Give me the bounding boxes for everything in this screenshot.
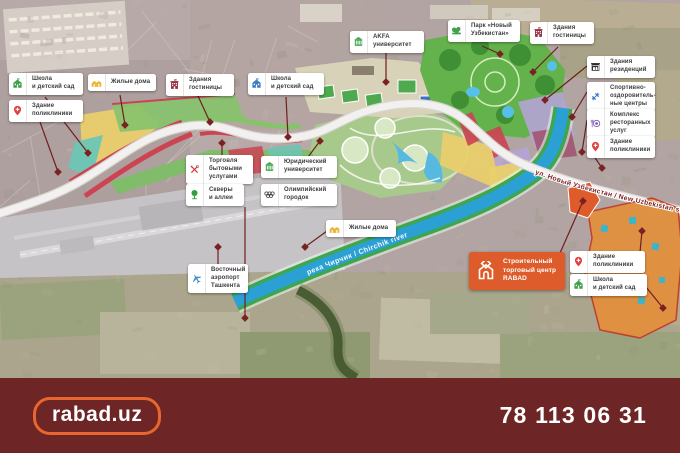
label-text: ВосточныйаэропортТашкента xyxy=(206,264,249,293)
label-line: городок xyxy=(284,195,326,203)
label-line: Торговля xyxy=(209,158,242,166)
label-text: Олимпийскийгородок xyxy=(279,184,330,206)
tools-icon xyxy=(186,155,204,184)
label-residential-1: Жилые дома xyxy=(88,74,156,91)
label-text: AKFAуниверситет xyxy=(368,31,416,53)
label-line: поликлиники xyxy=(32,111,72,119)
label-line: Школа xyxy=(32,76,75,84)
label-text: Скверыи аллеи xyxy=(204,184,237,206)
label-text: Комплексресторанныхуслуг xyxy=(605,109,655,138)
label-line: Школа xyxy=(593,277,636,285)
label-line: услугами xyxy=(209,174,242,182)
label-school-kindergarten-2: Школаи детский сад xyxy=(248,73,324,95)
label-line: Здания xyxy=(189,77,222,85)
label-line: и детский сад xyxy=(271,84,314,92)
label-line: Жилые дома xyxy=(111,79,150,87)
masterplan-map: ул. Новый Узбекистан / New Uzbekistan st… xyxy=(0,0,680,378)
label-line: оздоровитель- xyxy=(610,93,656,101)
label-line: Здание xyxy=(32,103,72,111)
university-icon xyxy=(261,156,279,178)
label-line: Жилые дома xyxy=(349,225,388,233)
label-line: Здания xyxy=(553,25,586,33)
label-line: и детский сад xyxy=(593,285,636,293)
label-line: ресторанных xyxy=(610,120,651,128)
rabad-center-card: Строительный торговый центр RABAD xyxy=(469,252,565,290)
label-hotel-1: Зданиягостиницы xyxy=(166,74,234,96)
university-icon xyxy=(350,31,368,53)
label-polyclinic-1: Зданиеполиклиники xyxy=(9,100,83,122)
rabad-logo-icon xyxy=(476,261,496,281)
satellite-map: ул. Новый Узбекистан / New Uzbekistan st… xyxy=(0,0,680,378)
label-text: Спортивно-оздоровитель-ные центры xyxy=(605,82,660,111)
rabad-site-logo: rabad.uz xyxy=(33,397,161,435)
label-text: Школаи детский сад xyxy=(588,274,640,296)
label-text: Жилые дома xyxy=(344,220,392,237)
park-icon xyxy=(448,20,466,42)
label-line: Здания xyxy=(610,59,647,67)
label-restaurant-complex: Комплексресторанныхуслуг xyxy=(587,109,655,138)
label-line: резиденций xyxy=(610,67,647,75)
label-line: и аллеи xyxy=(209,195,233,203)
label-text: Зданиеполиклиники xyxy=(588,251,637,273)
label-line: гостиницы xyxy=(553,33,586,41)
houses-icon xyxy=(326,220,344,237)
label-school-kindergarten-1: Школаи детский сад xyxy=(9,73,83,95)
label-text: Школаи детский сад xyxy=(27,73,79,95)
label-polyclinic-2: Зданиеполиклиники xyxy=(587,136,655,158)
airplane-icon xyxy=(188,264,206,293)
label-text: Зданиягостиницы xyxy=(184,74,226,96)
hotel-icon xyxy=(530,22,548,44)
label-line: университет xyxy=(284,167,327,175)
label-line: Юридический xyxy=(284,159,327,167)
label-text: Школаи детский сад xyxy=(266,73,318,95)
label-line: Парк «Новый xyxy=(471,23,512,31)
label-line: и детский сад xyxy=(32,84,75,92)
houses-icon xyxy=(88,74,106,91)
label-line: Скверы xyxy=(209,187,233,195)
phone-number: 78 113 06 31 xyxy=(500,402,647,429)
label-line: Школа xyxy=(271,76,314,84)
rabad-center-text: Строительный торговый центр RABAD xyxy=(503,258,556,284)
school-icon xyxy=(9,73,27,95)
label-polyclinic-3: Зданиеполиклиники xyxy=(570,251,645,273)
label-olympic-town: Олимпийскийгородок xyxy=(261,184,337,206)
label-line: Восточный xyxy=(211,267,245,275)
label-line: аэропорт xyxy=(211,275,245,283)
pin-icon xyxy=(570,251,588,273)
label-line: гостиницы xyxy=(189,85,222,93)
hotel-icon xyxy=(166,74,184,96)
label-text: Зданиярезиденций xyxy=(605,56,651,78)
label-text: Жилые дома xyxy=(106,74,154,91)
label-park-new-uzbekistan: Парк «НовыйУзбекистан» xyxy=(448,20,520,42)
label-text: Парк «НовыйУзбекистан» xyxy=(466,20,516,42)
rabad-masterplan-poster: ул. Новый Узбекистан / New Uzbekistan st… xyxy=(0,0,680,453)
restaurant-icon xyxy=(587,109,605,138)
label-line: университет xyxy=(373,42,412,50)
label-akfa-university: AKFAуниверситет xyxy=(350,31,424,53)
pin-icon xyxy=(9,100,27,122)
label-east-airport: ВосточныйаэропортТашкента xyxy=(188,264,248,293)
label-household-services: Торговлябытовымиуслугами xyxy=(186,155,253,184)
label-text: Зданиеполиклиники xyxy=(27,100,76,122)
label-line: поликлиники xyxy=(593,262,633,270)
label-line: Комплекс xyxy=(610,112,651,120)
label-line: Узбекистан» xyxy=(471,31,512,39)
label-line: ные центры xyxy=(610,101,656,109)
pin-icon xyxy=(587,136,605,158)
dumbbell-icon xyxy=(587,82,605,111)
label-line: Здание xyxy=(610,139,650,147)
olympic-icon xyxy=(261,184,279,206)
palace-icon xyxy=(587,56,605,78)
label-line: AKFA xyxy=(373,34,412,42)
label-text: Торговлябытовымиуслугами xyxy=(204,155,246,184)
label-text: Юридическийуниверситет xyxy=(279,156,331,178)
label-school-kindergarten-3: Школаи детский сад xyxy=(570,274,647,296)
school-icon xyxy=(570,274,588,296)
label-line: услуг xyxy=(610,128,651,136)
label-line: поликлиники xyxy=(610,147,650,155)
label-hotel-2: Зданиягостиницы xyxy=(530,22,594,44)
label-line: Спортивно- xyxy=(610,85,656,93)
label-residential-2: Жилые дома xyxy=(326,220,396,237)
label-parks-and-alleys: Скверыи аллеи xyxy=(186,184,244,206)
label-line: бытовыми xyxy=(209,166,242,174)
footer-bar: rabad.uz 78 113 06 31 xyxy=(0,378,680,453)
school-icon xyxy=(248,73,266,95)
label-line: Олимпийский xyxy=(284,187,326,195)
label-text: Зданиягостиницы xyxy=(548,22,590,44)
tree-icon xyxy=(186,184,204,206)
label-line: Ташкента xyxy=(211,283,245,291)
label-residences: Зданиярезиденций xyxy=(587,56,655,78)
label-sports-centers: Спортивно-оздоровитель-ные центры xyxy=(587,82,655,111)
label-law-university: Юридическийуниверситет xyxy=(261,156,337,178)
label-line: Здание xyxy=(593,254,633,262)
label-text: Зданиеполиклиники xyxy=(605,136,654,158)
